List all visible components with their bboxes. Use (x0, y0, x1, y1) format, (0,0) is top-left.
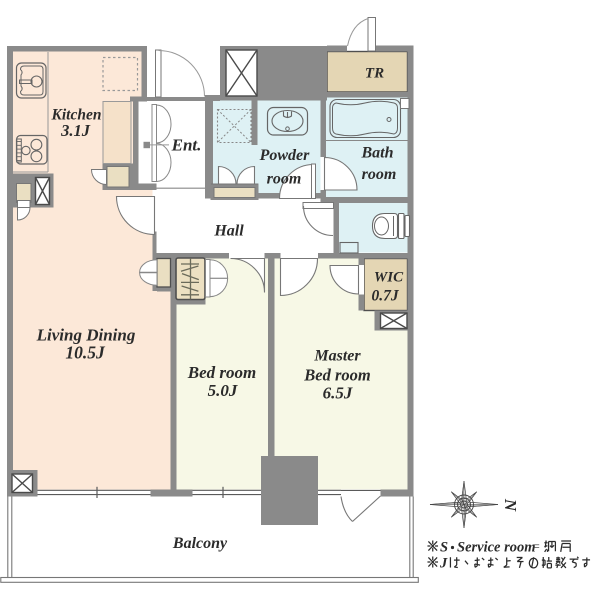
svg-text:Balcony: Balcony (172, 535, 228, 552)
svg-text:Bed room: Bed room (187, 363, 256, 382)
svg-text:Powder: Powder (259, 147, 311, 164)
svg-text:room: room (267, 171, 302, 188)
svg-text:=: = (533, 539, 540, 554)
svg-text:Bed room: Bed room (303, 366, 371, 385)
svg-text:TR: TR (365, 66, 384, 82)
svg-text:S: S (440, 540, 448, 556)
svg-text:3.1J: 3.1J (60, 121, 91, 140)
svg-text:room: room (362, 166, 397, 183)
svg-text:N: N (501, 498, 520, 512)
svg-text:5.0J: 5.0J (208, 381, 238, 400)
svg-text:6.5J: 6.5J (323, 384, 353, 403)
svg-text:WIC: WIC (374, 270, 404, 286)
svg-text:Ent.: Ent. (171, 136, 202, 155)
svg-text:Service room: Service room (457, 540, 536, 556)
svg-text:0.7J: 0.7J (371, 288, 399, 305)
svg-text:Hall: Hall (213, 223, 244, 240)
svg-text:10.5J: 10.5J (65, 343, 106, 363)
svg-text:Bath: Bath (360, 145, 393, 162)
svg-text:Master: Master (313, 348, 361, 365)
svg-text:J: J (439, 556, 448, 572)
